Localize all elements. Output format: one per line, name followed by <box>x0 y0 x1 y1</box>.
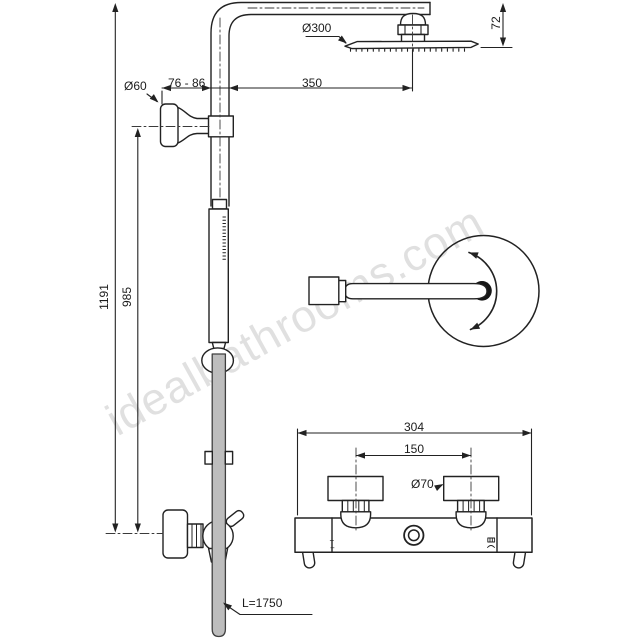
label-head-diameter: Ø300 <box>302 21 331 35</box>
label-hose-length: L=1750 <box>242 596 282 610</box>
wall-mount-block <box>309 277 339 305</box>
label-riser-height-lower: 985 <box>120 277 134 317</box>
hose-slider-clamp <box>205 452 212 465</box>
label-flange-diameter: Ø60 <box>124 79 147 93</box>
diverter-valve <box>163 509 245 562</box>
hose-slider-clamp <box>225 452 232 465</box>
label-inlet-flange-diameter: Ø70 <box>411 477 434 491</box>
label-arm-projection: 350 <box>292 76 332 90</box>
drawing-canvas: + − <box>0 0 640 640</box>
rain-head-plate <box>345 41 478 48</box>
swivel-detail <box>309 236 539 347</box>
mixer-inlet-left <box>328 477 383 501</box>
diverter-knob <box>163 510 188 558</box>
label-head-offset-height: 72 <box>489 8 503 38</box>
shower-system-technical-drawing: idealbathrooms.com <box>0 0 640 640</box>
label-riser-height-total: 1191 <box>97 277 111 317</box>
hand-shower <box>202 200 234 374</box>
shower-head-assembly <box>345 14 478 52</box>
mixer-marking-minus: − <box>330 544 335 553</box>
ball-joint <box>401 14 426 26</box>
wall-flange <box>161 104 234 147</box>
label-mixer-width: 304 <box>394 420 434 434</box>
label-wall-clearance: 76 - 86 <box>168 76 205 90</box>
rain-head-nozzles <box>351 49 465 52</box>
shower-hose <box>205 354 233 637</box>
label-inlet-centres: 150 <box>394 442 434 456</box>
arm-top-view <box>345 284 487 299</box>
